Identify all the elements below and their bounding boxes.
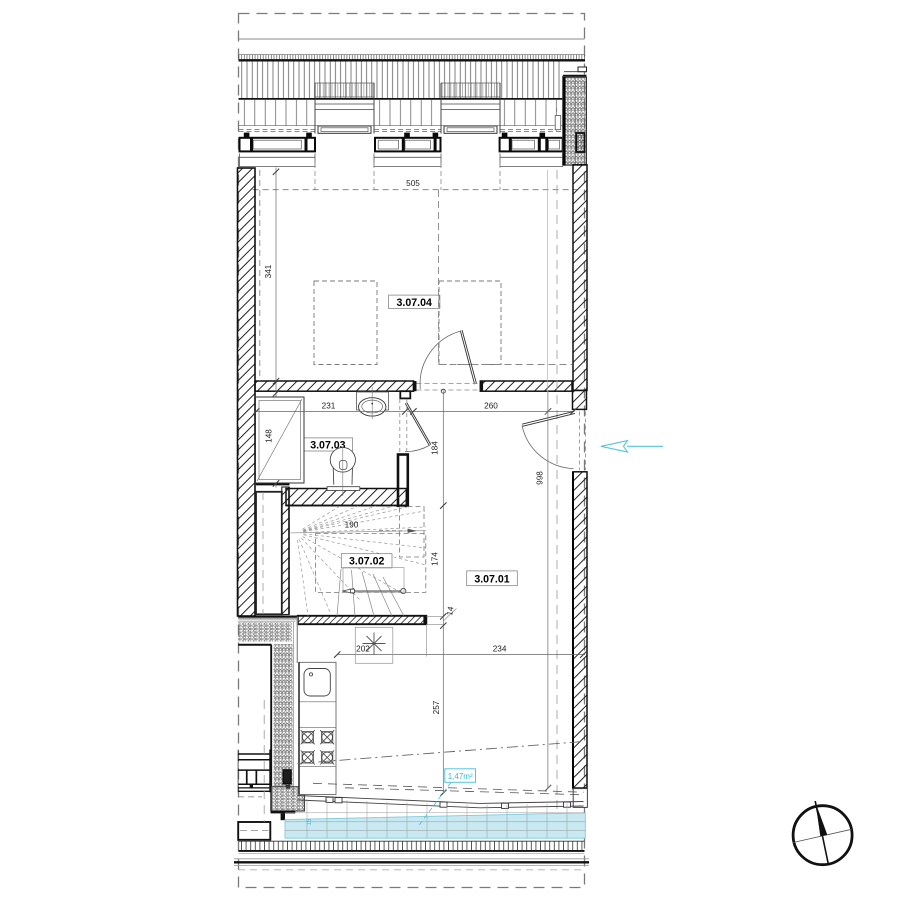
svg-text:3.07.01: 3.07.01 [474, 573, 509, 585]
svg-text:3.07.02: 3.07.02 [349, 556, 384, 568]
svg-text:1,47m²: 1,47m² [448, 772, 473, 781]
svg-text:257: 257 [432, 700, 441, 714]
svg-text:234: 234 [493, 645, 507, 654]
svg-text:190: 190 [345, 521, 359, 530]
svg-text:15: 15 [307, 818, 313, 825]
svg-text:998: 998 [536, 471, 545, 485]
svg-text:174: 174 [431, 552, 440, 566]
svg-text:14: 14 [445, 605, 456, 616]
svg-text:260: 260 [484, 402, 498, 411]
svg-text:184: 184 [431, 441, 440, 455]
svg-text:341: 341 [264, 264, 273, 278]
svg-text:3.07.04: 3.07.04 [397, 297, 432, 309]
svg-text:148: 148 [264, 429, 273, 443]
svg-text:231: 231 [322, 402, 336, 411]
svg-text:505: 505 [406, 179, 420, 188]
